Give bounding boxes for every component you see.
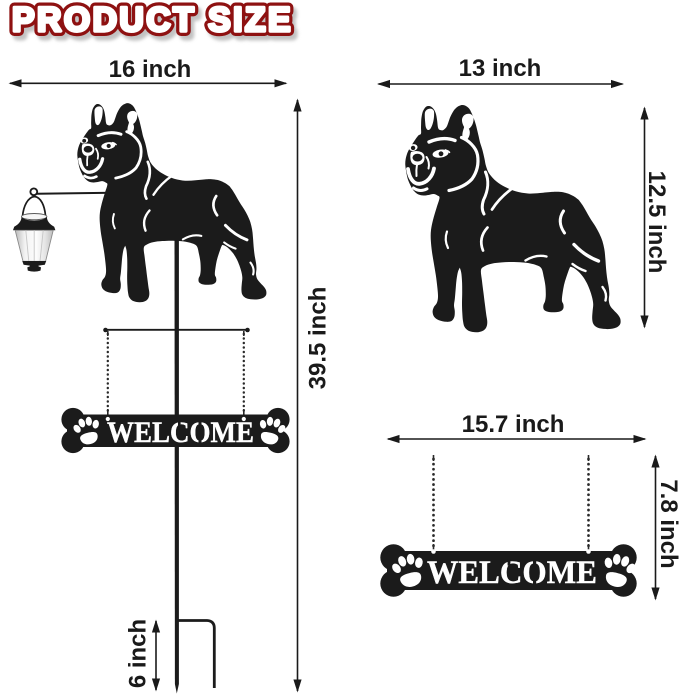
svg-text:12.5 inch: 12.5 inch xyxy=(643,171,670,274)
svg-text:6 inch: 6 inch xyxy=(125,619,152,688)
svg-text:13 inch: 13 inch xyxy=(459,55,542,82)
svg-text:WELCOME: WELCOME xyxy=(427,555,597,591)
svg-text:15.7 inch: 15.7 inch xyxy=(462,411,565,438)
svg-text:7.8 inch: 7.8 inch xyxy=(655,479,679,568)
svg-text:PRODUCT SIZE: PRODUCT SIZE xyxy=(12,1,293,39)
svg-text:16 inch: 16 inch xyxy=(109,56,192,83)
svg-text:39.5 inch: 39.5 inch xyxy=(305,287,332,390)
